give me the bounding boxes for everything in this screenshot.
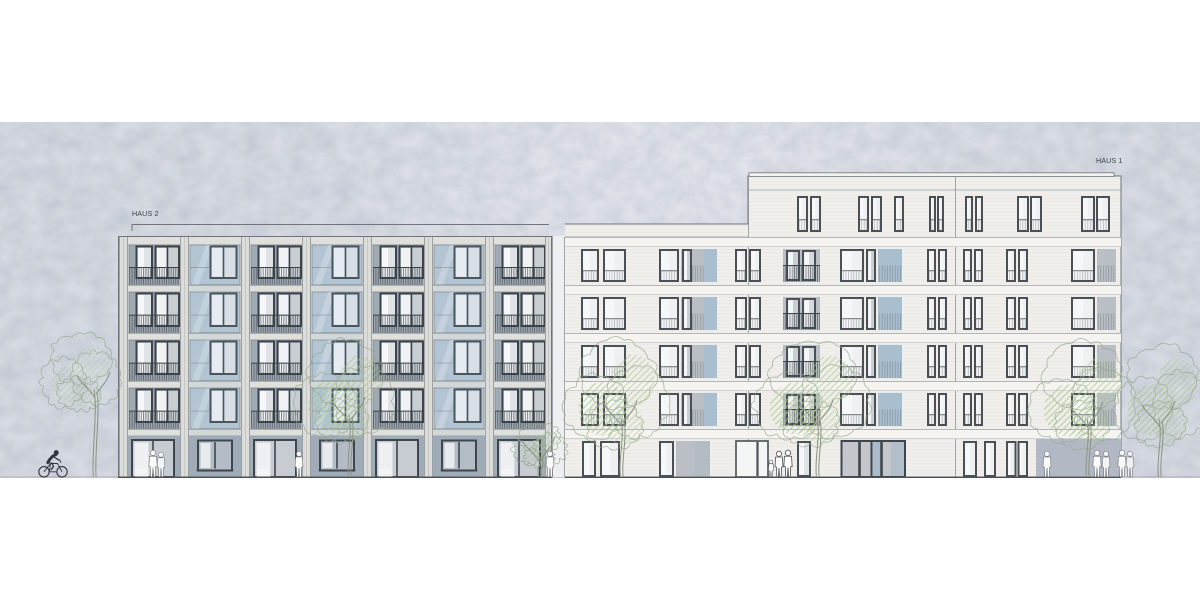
svg-text:HAUS 2: HAUS 2 (132, 209, 159, 218)
svg-text:HAUS 1: HAUS 1 (1096, 156, 1123, 165)
